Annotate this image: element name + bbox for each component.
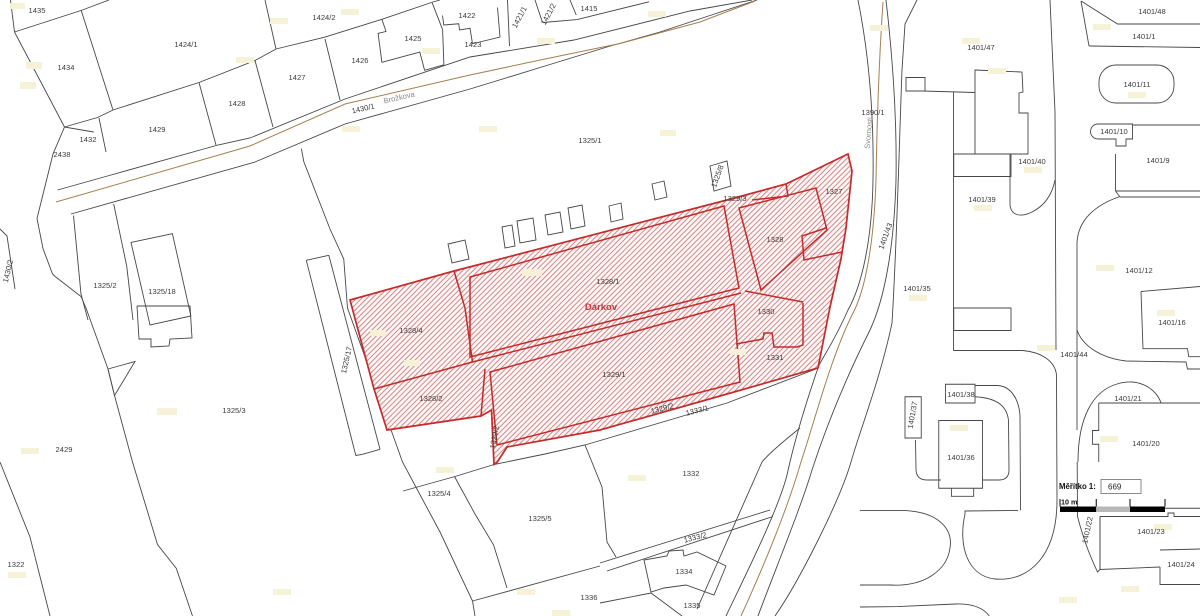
- svg-text:1322: 1322: [8, 560, 25, 569]
- svg-text:1325/4: 1325/4: [427, 489, 450, 498]
- svg-text:Dárkov: Dárkov: [585, 302, 618, 313]
- svg-text:Měřítko 1:: Měřítko 1:: [1059, 482, 1096, 491]
- svg-text:1335: 1335: [684, 601, 701, 610]
- svg-text:1401/10: 1401/10: [1100, 127, 1127, 136]
- svg-text:1328/1: 1328/1: [596, 277, 619, 286]
- svg-text:1401/48: 1401/48: [1138, 7, 1165, 16]
- svg-text:1429: 1429: [149, 125, 166, 134]
- svg-text:1401/21: 1401/21: [1114, 394, 1141, 403]
- svg-text:1401/38: 1401/38: [947, 390, 974, 399]
- svg-text:1329/1: 1329/1: [602, 370, 625, 379]
- svg-text:1428: 1428: [229, 99, 246, 108]
- svg-text:10 m: 10 m: [1061, 498, 1077, 507]
- svg-text:1427: 1427: [289, 73, 306, 82]
- svg-text:1401/24: 1401/24: [1167, 560, 1194, 569]
- svg-text:1328/2: 1328/2: [419, 394, 442, 403]
- svg-text:2438: 2438: [54, 150, 71, 159]
- svg-text:1401/9: 1401/9: [1146, 156, 1169, 165]
- svg-text:1401/23: 1401/23: [1137, 527, 1164, 536]
- svg-text:1332: 1332: [683, 469, 700, 478]
- svg-text:1330: 1330: [758, 307, 775, 316]
- svg-text:1424/1: 1424/1: [174, 40, 197, 49]
- svg-text:1331: 1331: [767, 353, 784, 362]
- svg-text:1325/3: 1325/3: [222, 406, 245, 415]
- svg-text:1325/18: 1325/18: [148, 287, 175, 296]
- svg-text:1401/16: 1401/16: [1158, 318, 1185, 327]
- svg-text:1401/35: 1401/35: [903, 284, 930, 293]
- svg-text:1435: 1435: [29, 6, 46, 15]
- svg-text:1415: 1415: [581, 4, 598, 13]
- svg-text:1423: 1423: [465, 40, 482, 49]
- svg-text:1425: 1425: [405, 34, 422, 43]
- svg-text:1424/2: 1424/2: [312, 13, 335, 22]
- svg-text:2429: 2429: [56, 445, 73, 454]
- svg-text:1401/47: 1401/47: [967, 43, 994, 52]
- svg-text:1336: 1336: [581, 593, 598, 602]
- svg-text:1325/2: 1325/2: [93, 281, 116, 290]
- svg-text:1401/20: 1401/20: [1132, 439, 1159, 448]
- svg-text:1401/44: 1401/44: [1060, 350, 1087, 359]
- svg-text:1401/11: 1401/11: [1124, 80, 1151, 89]
- svg-text:1325/5: 1325/5: [528, 514, 551, 523]
- svg-text:1401/12: 1401/12: [1125, 266, 1152, 275]
- svg-text:1426: 1426: [352, 56, 369, 65]
- svg-text:1390/1: 1390/1: [861, 108, 884, 117]
- svg-text:1328/4: 1328/4: [399, 326, 422, 335]
- svg-text:1401/36: 1401/36: [947, 453, 974, 462]
- svg-text:1422: 1422: [459, 11, 476, 20]
- svg-text:669: 669: [1108, 483, 1122, 492]
- svg-text:1328: 1328: [767, 235, 784, 244]
- svg-text:1434: 1434: [58, 63, 75, 72]
- svg-text:1334: 1334: [676, 567, 693, 576]
- svg-text:1401/39: 1401/39: [968, 195, 995, 204]
- svg-text:1432: 1432: [80, 135, 97, 144]
- svg-text:1327: 1327: [826, 187, 843, 196]
- svg-text:1401/40: 1401/40: [1018, 157, 1045, 166]
- svg-text:1401/1: 1401/1: [1132, 32, 1155, 41]
- svg-text:1325/1: 1325/1: [578, 136, 601, 145]
- svg-text:1329/3: 1329/3: [723, 194, 746, 203]
